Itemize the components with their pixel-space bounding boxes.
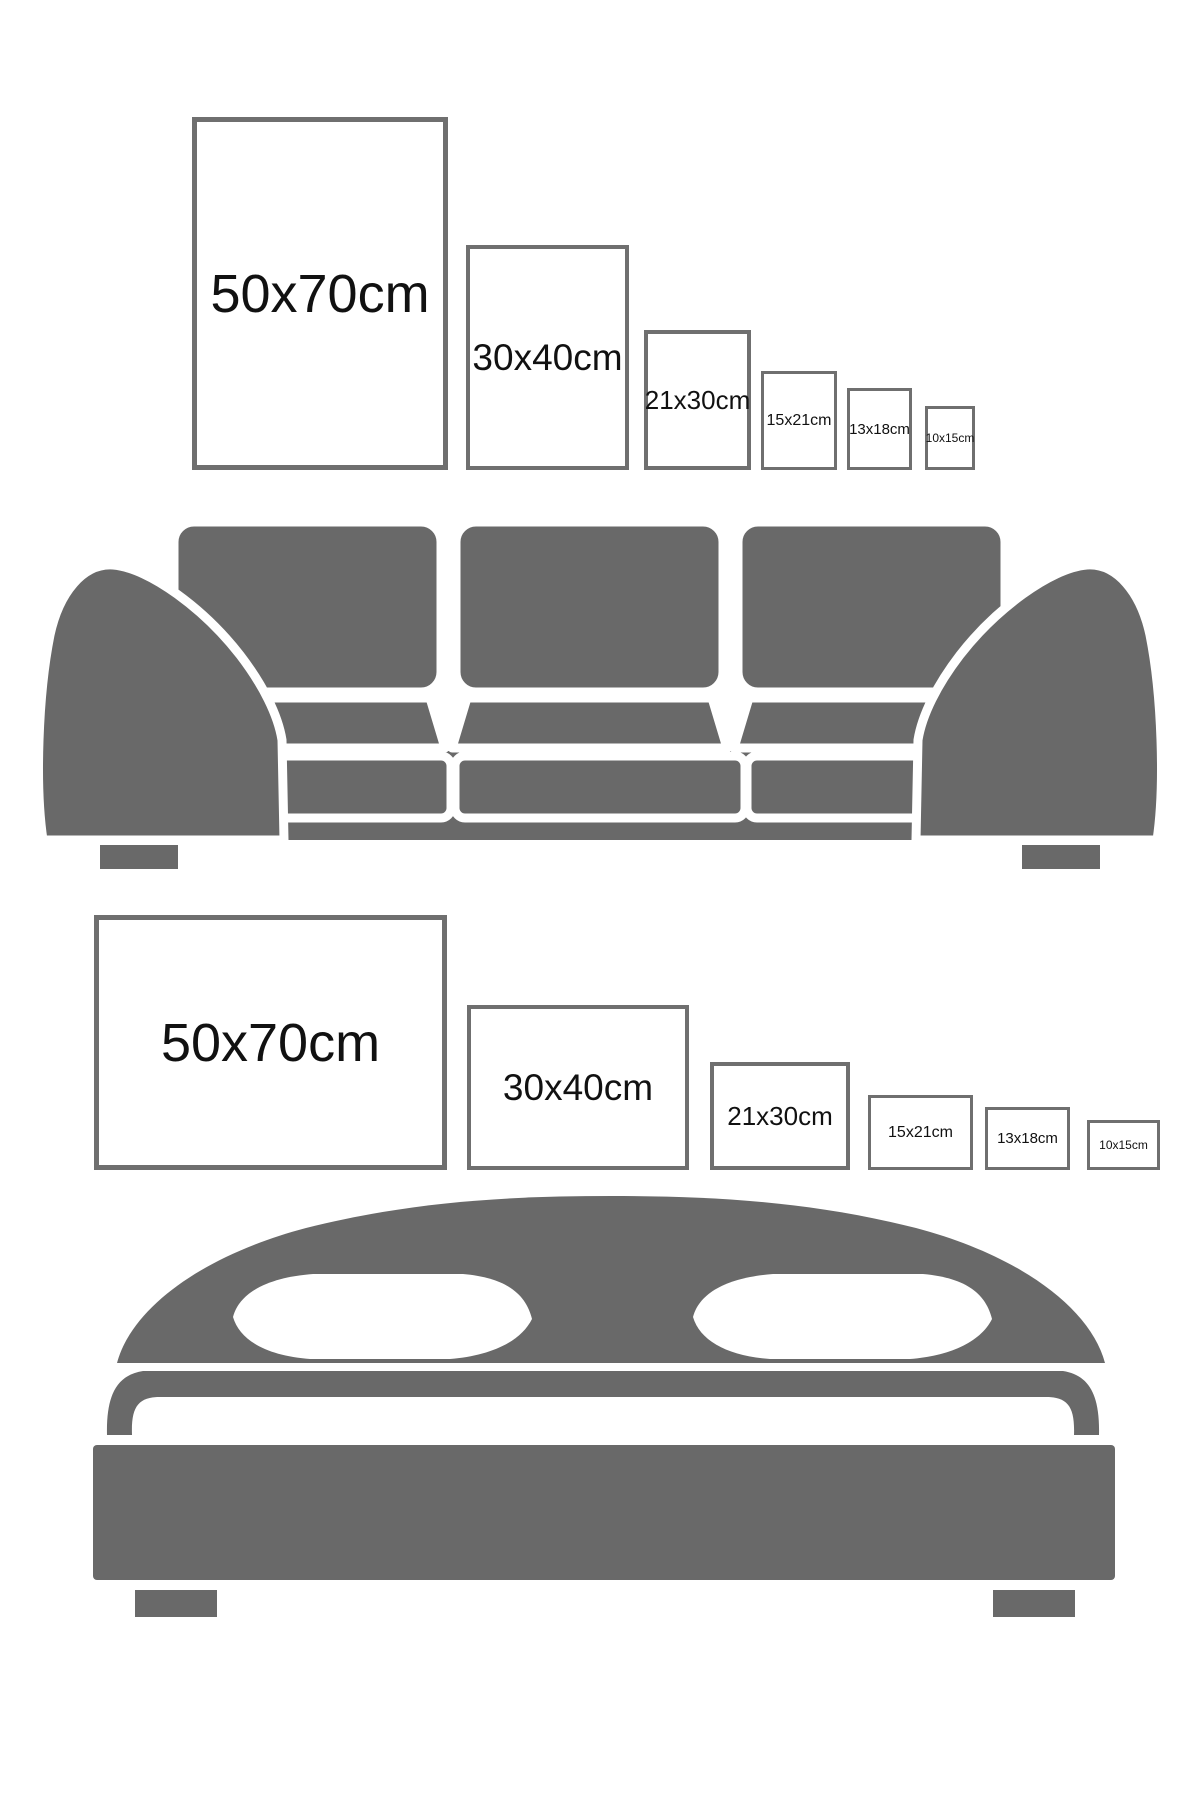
frame-50x70cm-portrait: 50x70cm [192,117,448,470]
sofa-leg-left [100,845,178,869]
sofa-leg-right [1022,845,1100,869]
frame-21x30cm-portrait: 21x30cm [644,330,751,470]
frame-21x30cm-landscape: 21x30cm [710,1062,850,1170]
frame-30x40cm-portrait: 30x40cm [466,245,629,470]
bed-rail [107,1371,1099,1435]
frame-50x70cm-landscape: 50x70cm [94,915,447,1170]
sofa-silhouette [35,515,1165,873]
frame-size-label: 50x70cm [161,1012,380,1074]
frame-15x21cm-landscape: 15x21cm [868,1095,973,1170]
frame-size-label: 21x30cm [645,385,751,416]
frame-size-label: 30x40cm [503,1067,653,1109]
frame-15x21cm-portrait: 15x21cm [761,371,837,470]
frame-size-label: 21x30cm [727,1101,833,1132]
frame-13x18cm-portrait: 13x18cm [847,388,912,470]
bed-leg-right [993,1590,1075,1617]
bed-silhouette [88,1195,1118,1635]
frame-size-label: 50x70cm [210,263,429,325]
frame-size-label: 13x18cm [997,1130,1058,1147]
frame-size-label: 10x15cm [1099,1138,1148,1152]
sofa-back-cushion [456,522,723,692]
frame-13x18cm-landscape: 13x18cm [985,1107,1070,1170]
frame-10x15cm-landscape: 10x15cm [1087,1120,1160,1170]
frame-size-label: 15x21cm [888,1124,953,1142]
bed-leg-left [135,1590,217,1617]
frame-size-label: 13x18cm [849,421,910,438]
frame-10x15cm-portrait: 10x15cm [925,406,975,470]
frame-size-label: 10x15cm [926,431,975,445]
frame-size-label: 30x40cm [472,337,622,379]
sofa-seat-front [455,756,745,818]
frame-size-label: 15x21cm [767,412,832,430]
bed-base [93,1445,1115,1580]
bed-pillow-left [233,1274,532,1359]
frame-30x40cm-landscape: 30x40cm [467,1005,689,1170]
sofa-seat-top [452,698,727,748]
bed-pillow-right [693,1274,992,1359]
